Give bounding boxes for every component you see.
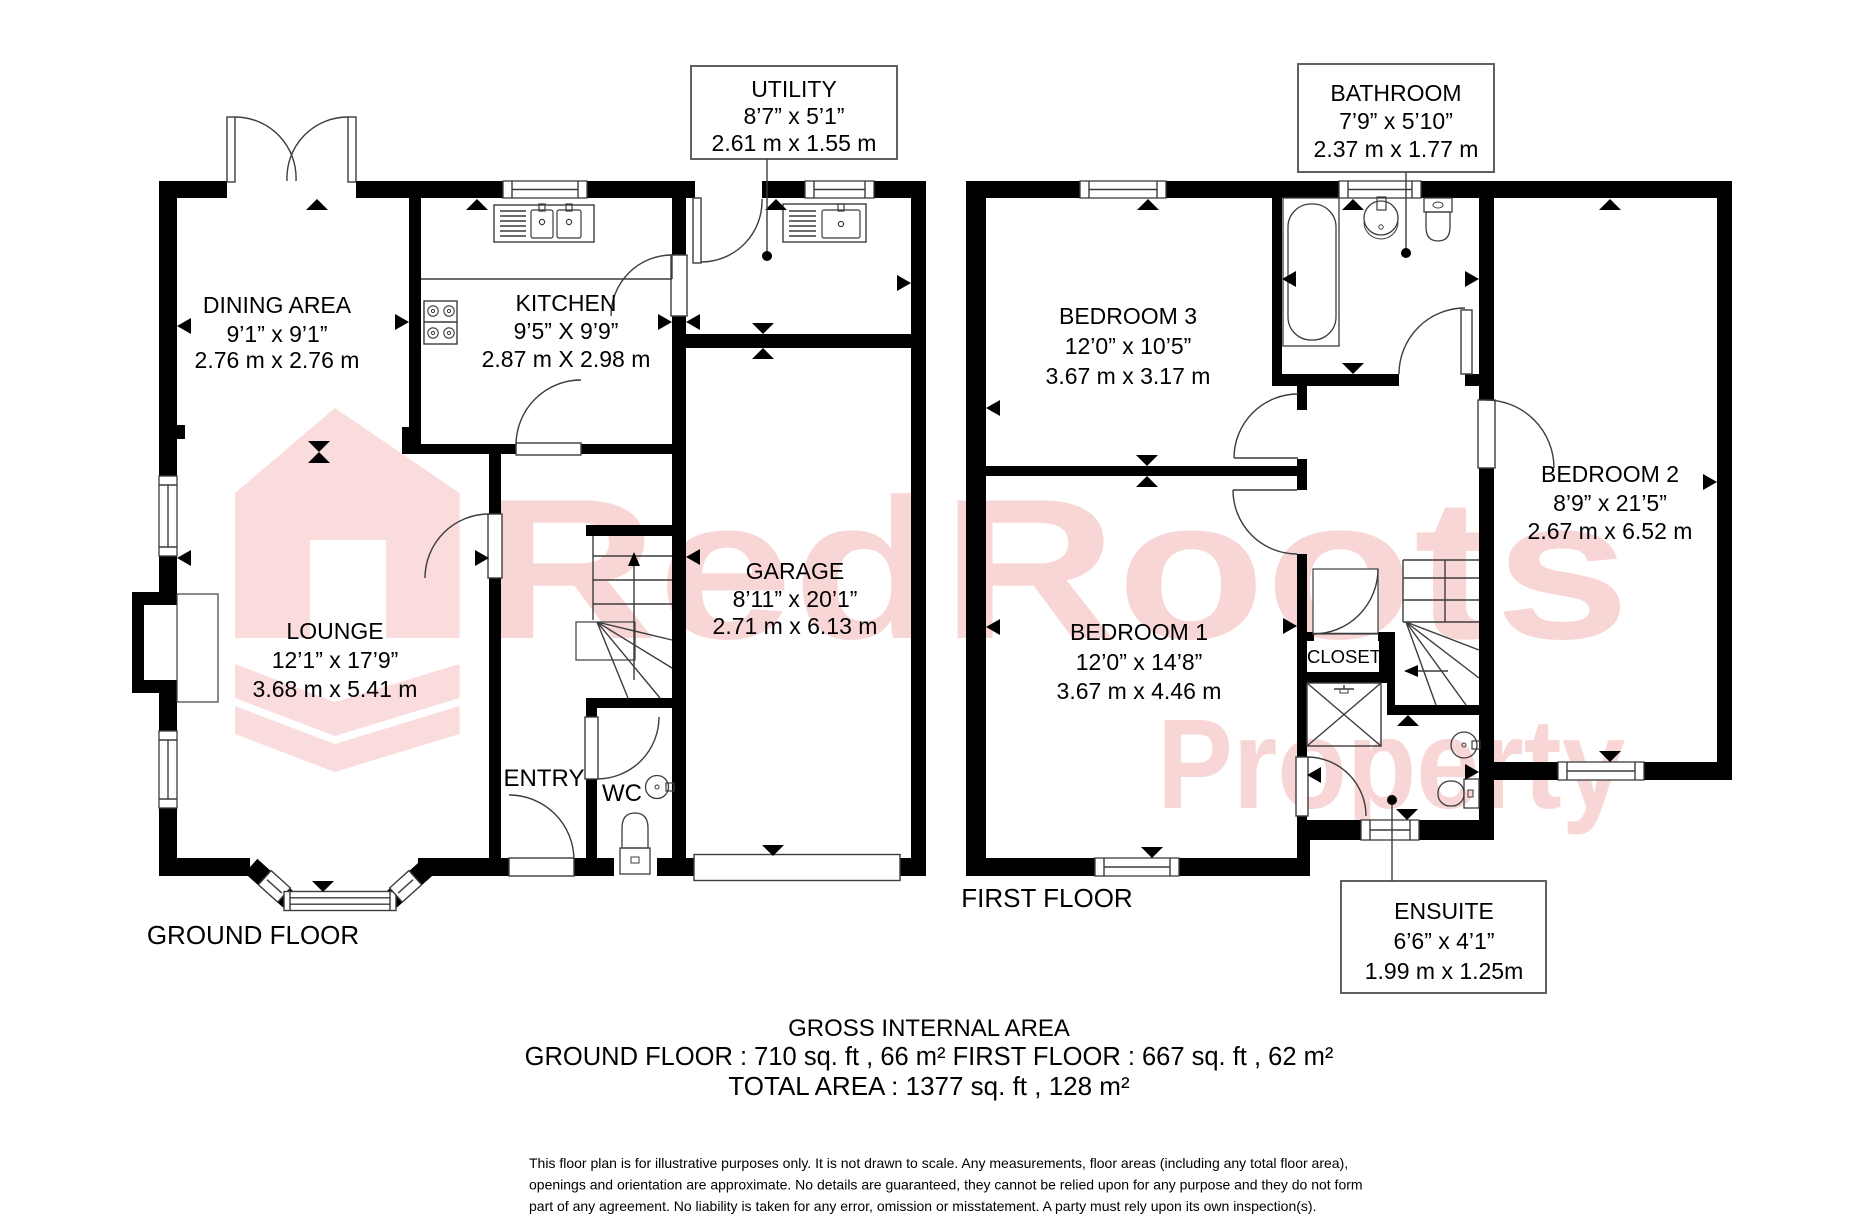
svg-text:2.61 m x 1.55 m: 2.61 m x 1.55 m <box>712 130 877 156</box>
svg-text:2.71 m x 6.13 m: 2.71 m x 6.13 m <box>713 613 878 639</box>
svg-text:DINING AREA: DINING AREA <box>203 292 352 318</box>
svg-text:BATHROOM: BATHROOM <box>1330 80 1461 106</box>
svg-text:GROUND FLOOR : 710 sq. ft , 66: GROUND FLOOR : 710 sq. ft , 66 m² FIRST … <box>525 1043 1334 1071</box>
svg-text:GROSS INTERNAL AREA: GROSS INTERNAL AREA <box>788 1015 1070 1042</box>
svg-text:2.87 m X 2.98 m: 2.87 m X 2.98 m <box>482 346 651 372</box>
svg-text:KITCHEN: KITCHEN <box>516 290 617 316</box>
svg-text:openings and orientation are a: openings and orientation are approximate… <box>529 1177 1363 1193</box>
svg-text:1.99 m x 1.25m: 1.99 m x 1.25m <box>1365 958 1524 984</box>
svg-text:9’5” X 9’9”: 9’5” X 9’9” <box>514 318 619 344</box>
svg-text:GARAGE: GARAGE <box>746 558 844 584</box>
svg-text:FIRST FLOOR: FIRST FLOOR <box>961 883 1132 913</box>
svg-text:7’9” x 5’10”: 7’9” x 5’10” <box>1339 108 1453 134</box>
svg-text:BEDROOM 1: BEDROOM 1 <box>1070 619 1208 645</box>
svg-text:BEDROOM 2: BEDROOM 2 <box>1541 461 1679 487</box>
svg-text:8’9” x 21’5”: 8’9” x 21’5” <box>1553 490 1667 516</box>
svg-text:8’7” x 5’1”: 8’7” x 5’1” <box>744 103 845 129</box>
svg-text:LOUNGE: LOUNGE <box>286 618 383 644</box>
svg-text:TOTAL AREA : 1377 sq. ft , 128: TOTAL AREA : 1377 sq. ft , 128 m² <box>728 1071 1130 1101</box>
svg-text:This floor plan is for illustr: This floor plan is for illustrative purp… <box>529 1155 1348 1171</box>
svg-text:2.67 m x 6.52 m: 2.67 m x 6.52 m <box>1528 518 1693 544</box>
svg-text:CLOSET: CLOSET <box>1307 646 1381 667</box>
svg-text:2.37 m x 1.77 m: 2.37 m x 1.77 m <box>1314 136 1479 162</box>
svg-text:BEDROOM 3: BEDROOM 3 <box>1059 303 1197 329</box>
svg-text:2.76 m x 2.76 m: 2.76 m x 2.76 m <box>195 347 360 373</box>
svg-text:6’6” x 4’1”: 6’6” x 4’1” <box>1394 928 1495 954</box>
svg-text:ENSUITE: ENSUITE <box>1394 898 1494 924</box>
svg-text:UTILITY: UTILITY <box>751 76 837 102</box>
svg-text:9’1” x 9’1”: 9’1” x 9’1” <box>227 321 328 347</box>
svg-text:12’1” x 17’9”: 12’1” x 17’9” <box>272 647 399 673</box>
svg-text:3.67 m x 4.46 m: 3.67 m x 4.46 m <box>1057 678 1222 704</box>
svg-text:3.68 m x 5.41 m: 3.68 m x 5.41 m <box>253 676 418 702</box>
svg-text:12’0” x 14’8”: 12’0” x 14’8” <box>1076 649 1203 675</box>
svg-text:8’11” x 20’1”: 8’11” x 20’1” <box>733 586 858 612</box>
svg-text:GROUND FLOOR: GROUND FLOOR <box>147 920 359 950</box>
svg-text:3.67 m x 3.17 m: 3.67 m x 3.17 m <box>1046 363 1211 389</box>
svg-text:WC: WC <box>602 780 642 807</box>
svg-text:RedRoots: RedRoots <box>482 458 1630 681</box>
svg-text:part of any agreement. No liab: part of any agreement. No liability is t… <box>529 1198 1316 1214</box>
svg-text:12’0” x 10’5”: 12’0” x 10’5” <box>1065 333 1192 359</box>
svg-text:ENTRY: ENTRY <box>504 765 585 792</box>
